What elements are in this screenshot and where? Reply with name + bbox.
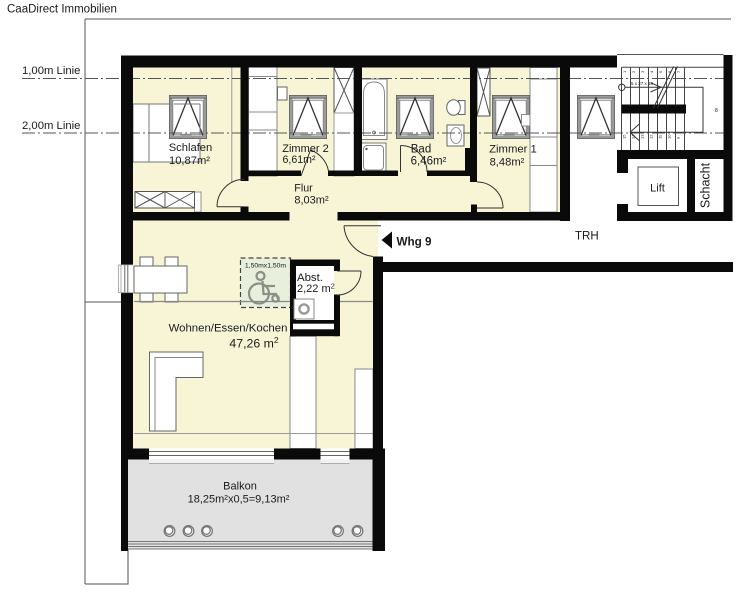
svg-text:TRH: TRH [575, 231, 599, 243]
svg-text:6,46m²: 6,46m² [411, 156, 447, 168]
svg-text:Flur: Flur [294, 183, 313, 195]
svg-text:Zimmer 1: Zimmer 1 [489, 144, 537, 156]
svg-text:Schacht: Schacht [699, 162, 713, 208]
svg-text:5 x 27 x 18: 5 x 27 x 18 [631, 81, 654, 86]
svg-text:6,61m²: 6,61m² [283, 154, 316, 166]
svg-text:15: 15 [622, 134, 627, 139]
svg-text:1,00m Linie: 1,00m Linie [22, 65, 80, 77]
svg-text:1,50mx1,50m: 1,50mx1,50m [245, 263, 287, 270]
svg-text:13: 13 [640, 134, 645, 139]
svg-text:8,03m²: 8,03m² [294, 195, 329, 207]
svg-text:Bad: Bad [411, 144, 431, 156]
svg-text:Lift: Lift [650, 183, 665, 195]
svg-text:CaaDirect Immobilien: CaaDirect Immobilien [7, 4, 117, 16]
svg-text:10,87m²: 10,87m² [169, 155, 210, 167]
svg-text:Whg 9: Whg 9 [397, 236, 433, 249]
svg-text:Wohnen/Essen/Kochen: Wohnen/Essen/Kochen [169, 323, 288, 335]
svg-text:10: 10 [667, 134, 672, 139]
svg-text:47,26 m2: 47,26 m2 [229, 335, 278, 351]
svg-text:2,22 m2: 2,22 m2 [297, 282, 335, 296]
svg-text:8: 8 [715, 108, 718, 114]
svg-text:2,00m Linie: 2,00m Linie [22, 120, 80, 132]
svg-text:18,25m²x0,5=9,13m²: 18,25m²x0,5=9,13m² [188, 494, 290, 506]
svg-text:8,48m²: 8,48m² [490, 157, 525, 169]
svg-text:Schlafen: Schlafen [169, 142, 213, 154]
svg-text:12: 12 [649, 134, 654, 139]
svg-text:Balkon: Balkon [223, 481, 257, 493]
